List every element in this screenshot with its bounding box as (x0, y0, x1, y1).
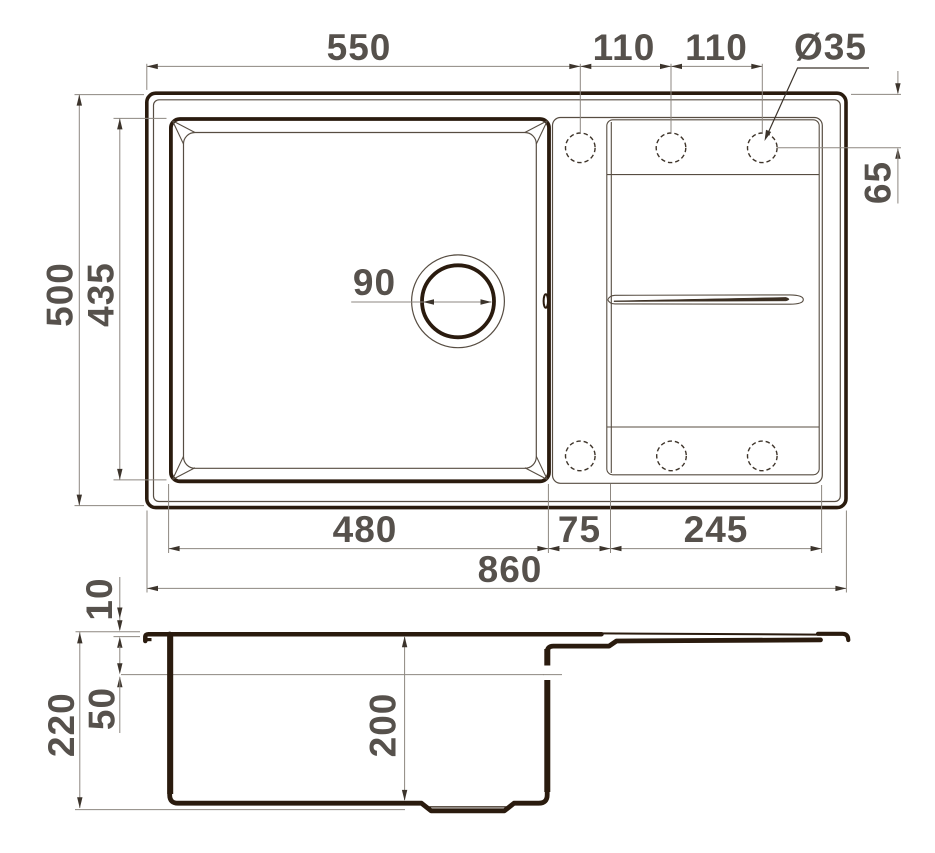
svg-text:220: 220 (41, 692, 82, 757)
svg-text:75: 75 (558, 509, 601, 550)
svg-text:110: 110 (593, 27, 656, 68)
svg-text:435: 435 (80, 262, 121, 327)
svg-text:110: 110 (685, 27, 748, 68)
svg-text:65: 65 (858, 161, 899, 204)
svg-text:860: 860 (478, 549, 543, 590)
svg-text:550: 550 (327, 27, 392, 68)
svg-text:50: 50 (81, 687, 122, 730)
svg-text:200: 200 (363, 693, 404, 758)
svg-text:90: 90 (353, 262, 396, 303)
svg-text:10: 10 (79, 577, 120, 620)
svg-text:500: 500 (40, 262, 81, 327)
svg-text:Ø35: Ø35 (794, 27, 867, 68)
svg-text:245: 245 (684, 509, 749, 550)
svg-text:480: 480 (333, 509, 398, 550)
